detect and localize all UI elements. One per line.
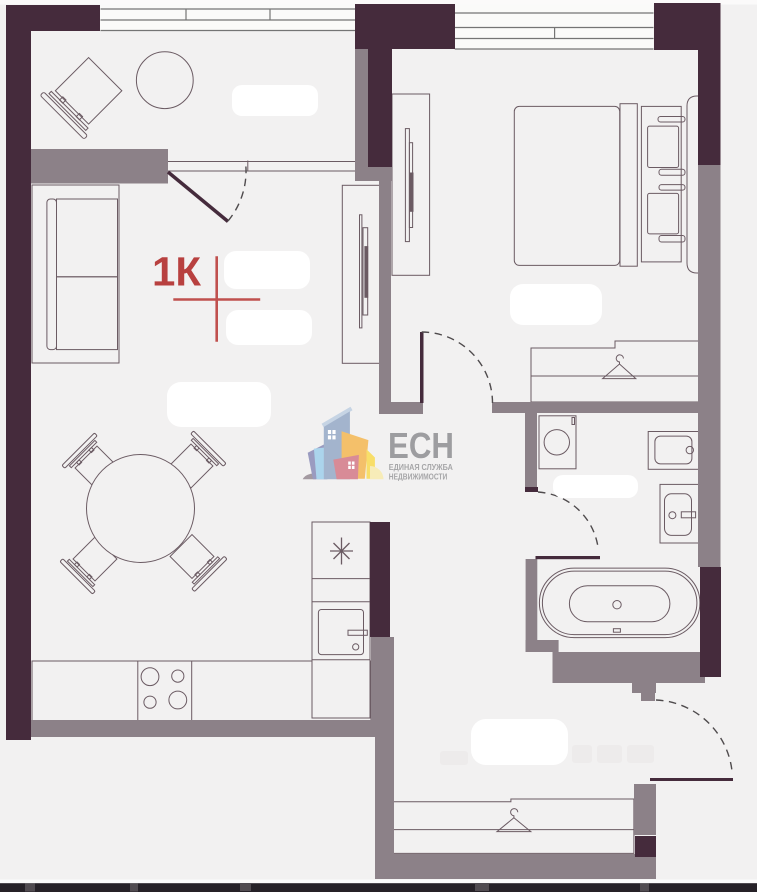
svg-text:НЕДВИЖИМОСТИ: НЕДВИЖИМОСТИ bbox=[389, 472, 448, 481]
svg-text:ЕСН: ЕСН bbox=[388, 425, 454, 466]
svg-text:ЕДИНАЯ СЛУЖБА: ЕДИНАЯ СЛУЖБА bbox=[389, 463, 453, 472]
svg-text:1К: 1К bbox=[152, 249, 202, 295]
